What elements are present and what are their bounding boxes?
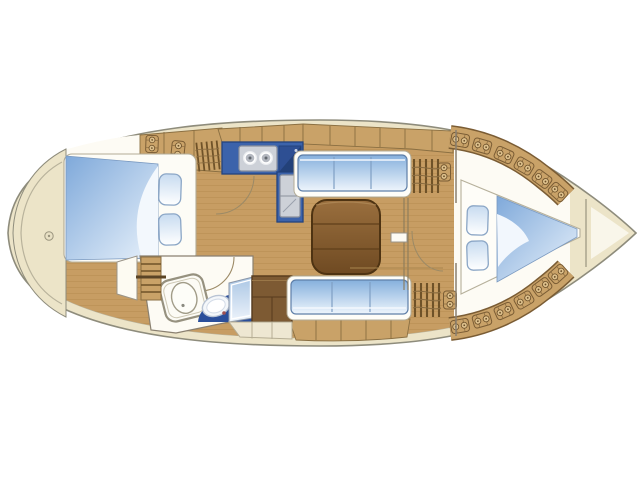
locker-icon bbox=[450, 318, 470, 334]
locker-icon bbox=[444, 291, 457, 309]
pillow bbox=[467, 241, 489, 271]
door-handle bbox=[391, 233, 407, 242]
stern-platform bbox=[13, 149, 66, 317]
toilet-button bbox=[222, 311, 226, 315]
locker-icon bbox=[438, 163, 451, 181]
yacht-floor-plan bbox=[0, 0, 640, 479]
companionway-steps bbox=[136, 257, 166, 300]
storage-cabinet bbox=[252, 276, 292, 322]
pillow bbox=[158, 174, 181, 206]
locker-icon bbox=[450, 132, 470, 148]
saloon-table bbox=[312, 200, 380, 274]
saloon-shelf-band-bottom bbox=[289, 319, 410, 341]
aft-cabin-seat bbox=[117, 256, 137, 300]
locker-icon bbox=[146, 135, 159, 153]
pillow bbox=[466, 206, 488, 236]
pillow bbox=[158, 214, 181, 246]
